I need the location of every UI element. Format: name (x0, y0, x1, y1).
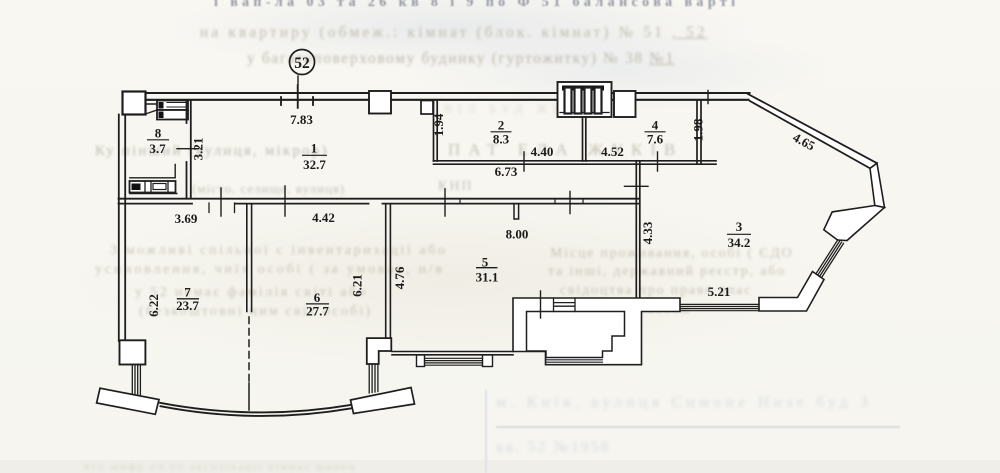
svg-text:8.00: 8.00 (506, 227, 529, 242)
svg-text:8.3: 8.3 (493, 132, 510, 147)
svg-text:23.7: 23.7 (176, 298, 199, 313)
svg-text:6.22: 6.22 (146, 294, 161, 317)
svg-text:6.21: 6.21 (350, 274, 365, 297)
svg-text:1: 1 (311, 141, 318, 156)
svg-text:4.76: 4.76 (392, 266, 407, 289)
svg-text:3.21: 3.21 (191, 138, 206, 161)
svg-text:1.98: 1.98 (691, 118, 706, 141)
svg-text:4.33: 4.33 (640, 221, 655, 244)
svg-text:5.21: 5.21 (708, 284, 731, 299)
svg-text:3.69: 3.69 (175, 211, 198, 226)
svg-text:34.2: 34.2 (728, 235, 751, 250)
svg-text:2: 2 (498, 118, 505, 133)
svg-text:7.6: 7.6 (647, 132, 664, 147)
svg-text:4: 4 (652, 118, 659, 133)
svg-text:6.73: 6.73 (495, 164, 518, 179)
svg-text:4.42: 4.42 (312, 210, 335, 225)
svg-text:3.7: 3.7 (149, 141, 166, 156)
svg-text:27.7: 27.7 (306, 304, 329, 319)
svg-text:1.94: 1.94 (431, 113, 446, 136)
svg-text:4.40: 4.40 (531, 144, 554, 159)
svg-text:7.83: 7.83 (290, 112, 313, 127)
svg-text:32.7: 32.7 (303, 157, 326, 172)
svg-text:52: 52 (294, 55, 310, 72)
svg-text:4.52: 4.52 (601, 144, 624, 159)
svg-text:3: 3 (736, 219, 743, 234)
svg-text:8: 8 (155, 126, 162, 141)
svg-text:31.1: 31.1 (476, 270, 499, 285)
